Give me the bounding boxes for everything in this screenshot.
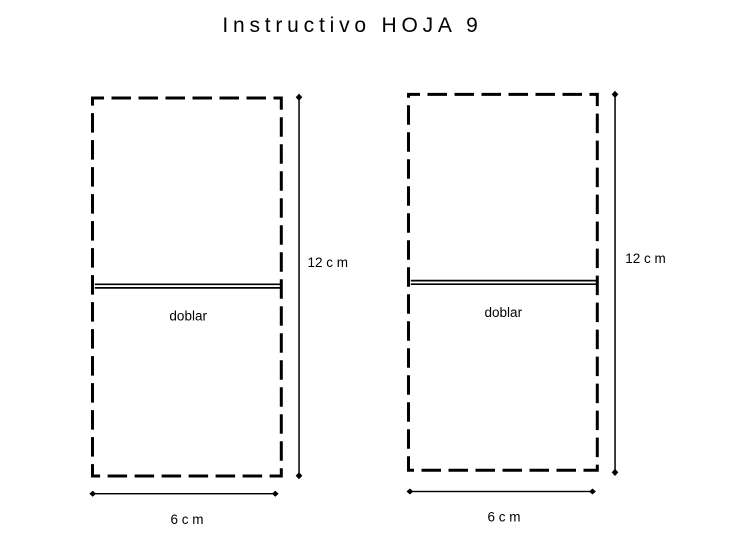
svg-text:12 c m: 12 c m bbox=[308, 255, 349, 270]
svg-text:6 c m: 6 c m bbox=[170, 512, 203, 527]
svg-text:12 c m: 12 c m bbox=[625, 251, 666, 266]
svg-text:6 c m: 6 c m bbox=[487, 509, 520, 524]
svg-text:doblar: doblar bbox=[485, 305, 523, 320]
svg-text:doblar: doblar bbox=[169, 308, 207, 323]
svg-text:Instructivo HOJA 9: Instructivo HOJA 9 bbox=[222, 14, 482, 37]
